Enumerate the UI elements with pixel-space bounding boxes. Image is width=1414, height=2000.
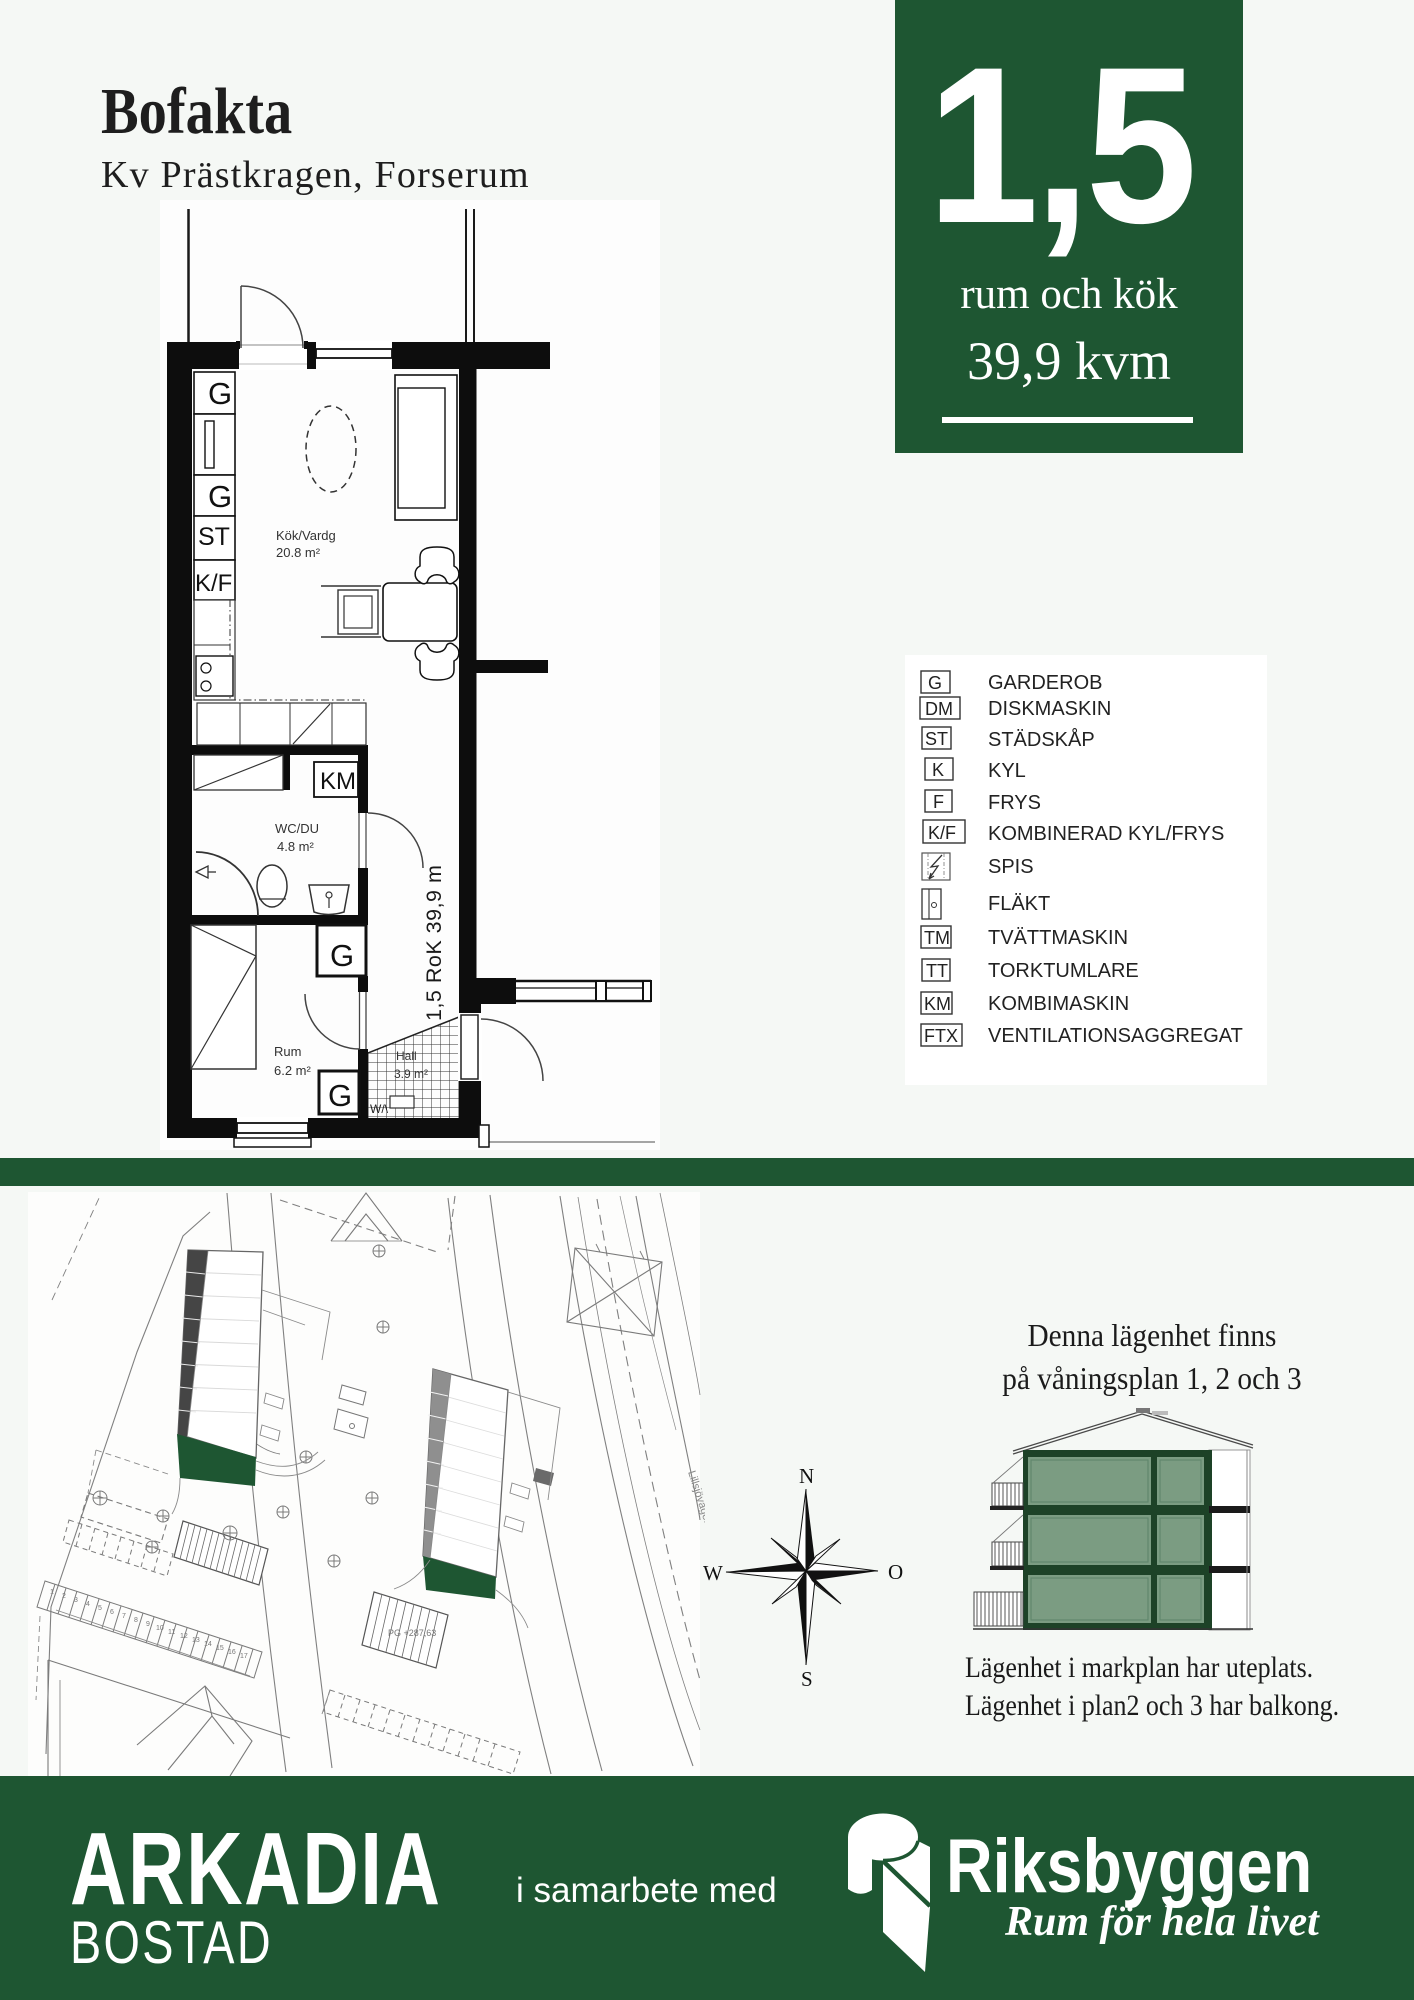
svg-text:3: 3: [74, 1597, 78, 1604]
svg-text:F: F: [933, 792, 944, 812]
svg-text:TVÄTTMASKIN: TVÄTTMASKIN: [988, 927, 1128, 949]
svg-text:8: 8: [134, 1617, 138, 1624]
svg-text:STÄDSKÅP: STÄDSKÅP: [988, 728, 1095, 751]
svg-text:G: G: [330, 938, 354, 973]
svg-text:ST: ST: [925, 729, 948, 749]
svg-text:G: G: [208, 479, 232, 514]
svg-text:W: W: [703, 1561, 723, 1585]
svg-text:15: 15: [216, 1645, 224, 1652]
svg-text:6: 6: [110, 1609, 114, 1616]
svg-text:KOMBINERAD KYL/FRYS: KOMBINERAD KYL/FRYS: [988, 823, 1224, 845]
svg-text:W/\: W/\: [370, 1102, 389, 1116]
svg-text:S: S: [801, 1667, 813, 1691]
svg-text:Hall: Hall: [396, 1049, 417, 1063]
svg-text:KM: KM: [320, 768, 356, 795]
svg-text:12: 12: [180, 1633, 188, 1640]
svg-text:VENTILATIONSAGGREGAT: VENTILATIONSAGGREGAT: [988, 1025, 1243, 1047]
svg-text:DM: DM: [925, 699, 953, 719]
svg-text:K/F: K/F: [928, 823, 956, 843]
svg-text:FRYS: FRYS: [988, 792, 1041, 814]
svg-text:G: G: [928, 673, 942, 693]
svg-text:14: 14: [204, 1641, 212, 1648]
svg-text:KOMBIMASKIN: KOMBIMASKIN: [988, 993, 1129, 1015]
svg-text:7: 7: [122, 1613, 126, 1620]
svg-text:1: 1: [50, 1589, 54, 1596]
svg-text:TM: TM: [924, 928, 950, 948]
svg-text:Rum: Rum: [274, 1044, 301, 1059]
svg-text:Kök/Vardg: Kök/Vardg: [276, 528, 336, 543]
svg-text:G: G: [328, 1078, 352, 1113]
svg-text:DISKMASKIN: DISKMASKIN: [988, 698, 1111, 720]
svg-text:16: 16: [228, 1649, 236, 1656]
svg-text:20.8 m²: 20.8 m²: [276, 545, 321, 560]
svg-text:FLÄKT: FLÄKT: [988, 893, 1050, 915]
svg-text:G: G: [208, 376, 232, 411]
svg-text:FTX: FTX: [924, 1026, 958, 1046]
svg-text:N: N: [799, 1464, 814, 1488]
svg-text:1,5 RoK 39,9 m: 1,5 RoK 39,9 m: [422, 865, 446, 1021]
svg-text:3.9 m²: 3.9 m²: [394, 1067, 428, 1081]
svg-text:ST: ST: [198, 523, 230, 551]
svg-text:K: K: [932, 760, 944, 780]
svg-text:13: 13: [192, 1637, 200, 1644]
svg-text:9: 9: [146, 1621, 150, 1628]
svg-text:4.8 m²: 4.8 m²: [277, 839, 315, 854]
svg-text:KYL: KYL: [988, 760, 1026, 782]
svg-text:GARDEROB: GARDEROB: [988, 672, 1102, 694]
svg-text:O: O: [888, 1560, 903, 1584]
svg-text:4: 4: [86, 1601, 90, 1608]
svg-text:2: 2: [62, 1593, 66, 1600]
svg-text:PG +287,63: PG +287,63: [388, 1628, 436, 1638]
svg-text:TT: TT: [926, 961, 948, 981]
svg-text:KM: KM: [924, 994, 951, 1014]
svg-text:17: 17: [240, 1653, 248, 1660]
svg-text:5: 5: [98, 1605, 102, 1612]
svg-text:TORKTUMLARE: TORKTUMLARE: [988, 960, 1139, 982]
svg-text:6.2 m²: 6.2 m²: [274, 1063, 312, 1078]
svg-text:K/F: K/F: [195, 570, 232, 597]
svg-text:10: 10: [156, 1625, 164, 1632]
svg-text:SPIS: SPIS: [988, 856, 1034, 878]
svg-text:WC/DU: WC/DU: [275, 821, 319, 836]
svg-text:11: 11: [168, 1629, 175, 1636]
